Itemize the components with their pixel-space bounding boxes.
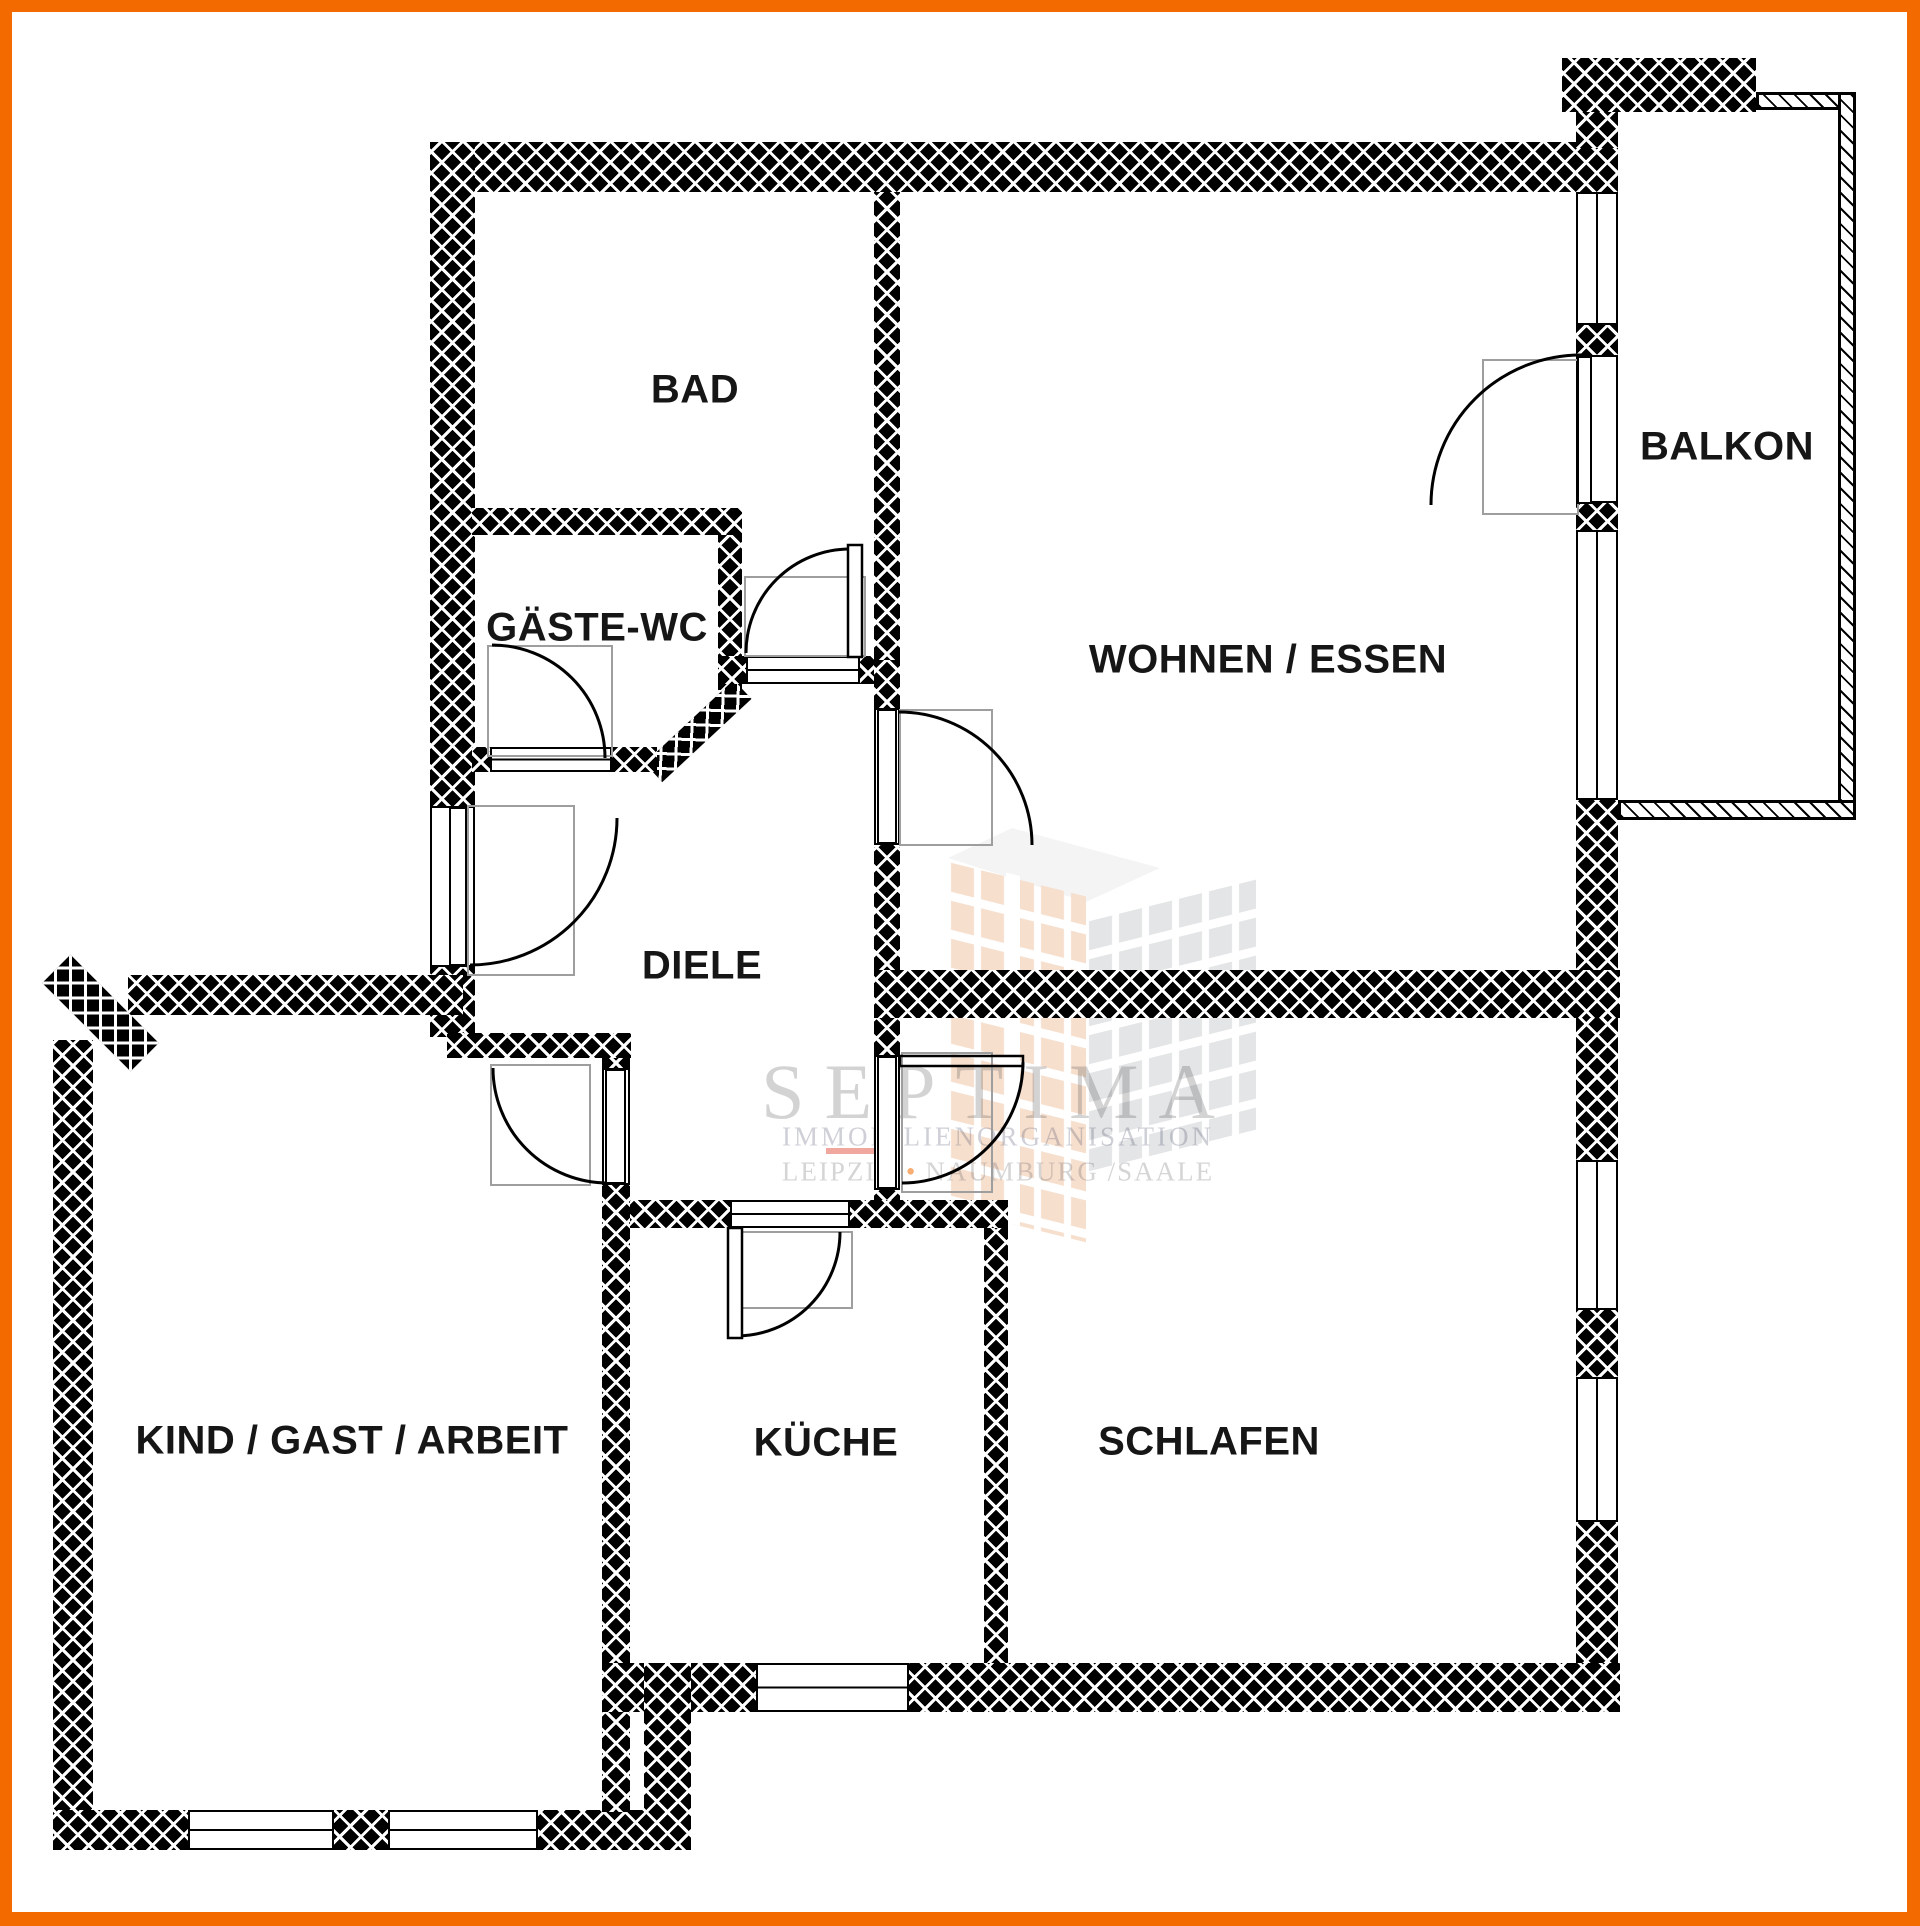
door-arc-wc — [492, 645, 605, 758]
room-label-wohnen-essen: WOHNEN / ESSEN — [1089, 638, 1447, 683]
door-leaf-balcony — [1578, 357, 1591, 503]
door-leaf-kueche — [728, 1228, 742, 1338]
room-label-bad: BAD — [651, 368, 739, 413]
door-arc-bad — [746, 549, 850, 653]
door-leaf-entry — [450, 808, 466, 965]
room-label-schlafen: SCHLAFEN — [1098, 1420, 1320, 1465]
room-label-balkon: BALKON — [1640, 425, 1814, 470]
door-leaf-schlafen-closed — [878, 1057, 896, 1188]
room-label-kind-gast-arbeit: KIND / GAST / ARBEIT — [136, 1419, 569, 1464]
room-label-diele: DIELE — [642, 944, 762, 989]
door-arc-kueche — [736, 1232, 840, 1336]
frame-border-left — [0, 0, 12, 1926]
door-leaf-bad — [848, 545, 862, 657]
door-arc-wohnen — [899, 712, 1032, 845]
frame-border-bottom — [0, 1912, 1920, 1926]
floorplan: SEPTIMA IMMOBILIENORGANISATION LEIPZIG•N… — [0, 0, 1920, 1926]
door-swings — [0, 0, 1920, 1926]
swing-box — [491, 1065, 590, 1185]
door-leaf-kind — [606, 1070, 625, 1183]
swing-box — [1483, 360, 1578, 514]
swing-box — [902, 1053, 992, 1192]
swing-box — [900, 710, 992, 845]
door-leaf-schlafen — [900, 1056, 1023, 1066]
door-leaf-wohnen — [878, 710, 896, 843]
door-arc-entry — [470, 818, 617, 965]
door-arc-balcony — [1431, 355, 1581, 505]
room-label-gaeste-wc: GÄSTE-WC — [486, 606, 708, 651]
door-arc-schlafen — [902, 1062, 1023, 1183]
frame-border-top — [0, 0, 1920, 12]
swing-box — [468, 806, 574, 975]
room-label-kueche: KÜCHE — [754, 1421, 899, 1466]
frame-border-right — [1907, 0, 1920, 1926]
